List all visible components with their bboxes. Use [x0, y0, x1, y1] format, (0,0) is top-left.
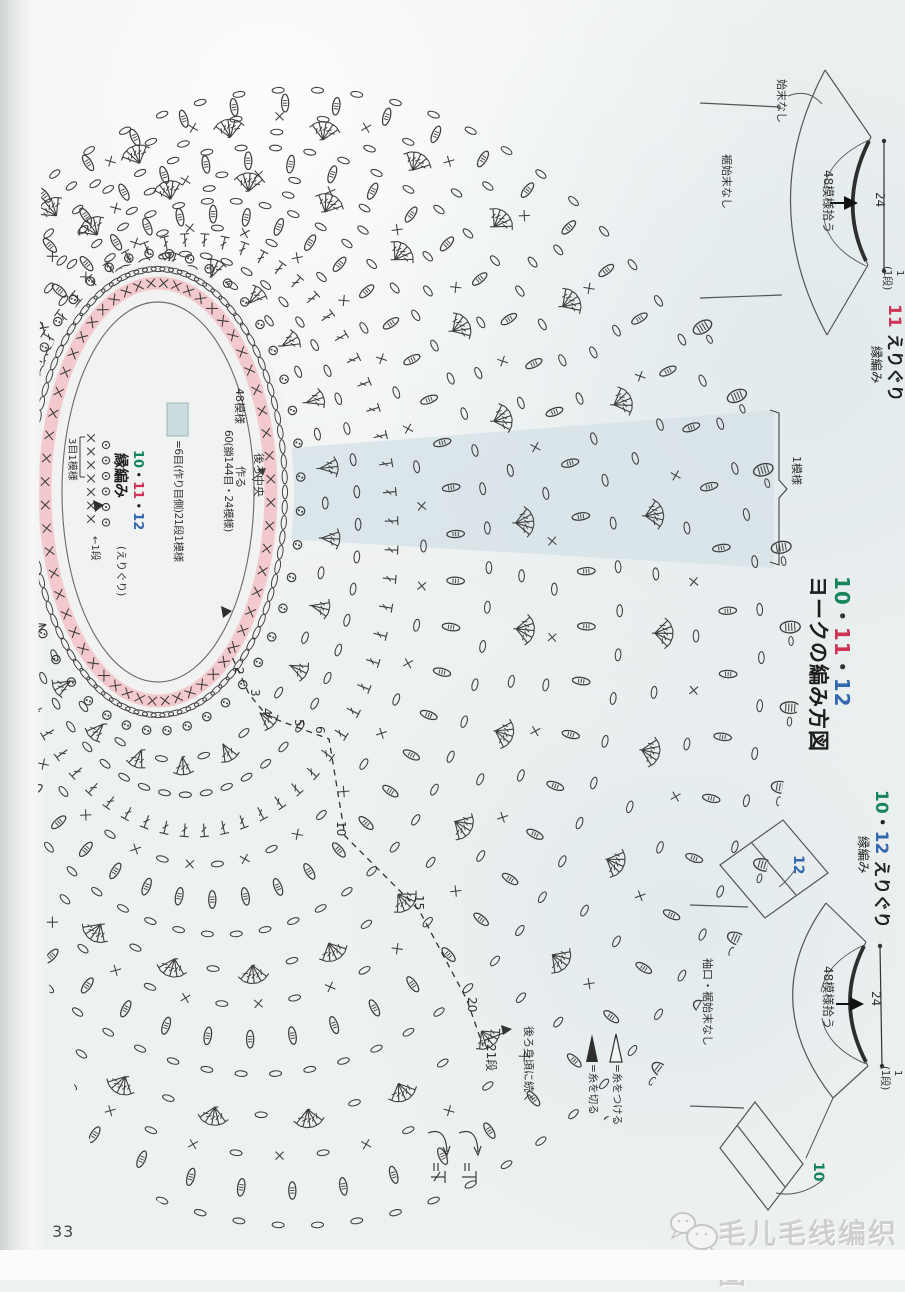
legend-attach-yarn: =糸をつける: [611, 1064, 623, 1125]
bottom-margin: [0, 1250, 905, 1280]
schematic-top-title: 11 えりぐり 縁編み: [869, 304, 903, 402]
continue-note: 後ろ身頃に続く: [521, 1026, 534, 1103]
crochet-chart-svg: [0, 0, 905, 1280]
sleeve-label-12: 12: [790, 855, 806, 874]
cuff-hem-label: 袖口・裾始末なし: [700, 958, 713, 1046]
bottom-label-10: 10: [810, 1162, 826, 1181]
schematic-top-side-line2: [700, 295, 782, 298]
schematic-mid-edge2: [833, 1066, 868, 1098]
no-finish-label: 始末なし: [774, 79, 787, 123]
row-number-15: 15: [411, 895, 425, 910]
pickup-label-mid: 48模様拾う: [820, 966, 834, 1029]
yoke-chart: [0, 87, 801, 1267]
page-title-numbers: 10・11・12: [830, 576, 853, 752]
schematic-mid-connector: [806, 1098, 833, 1158]
symbol-equivalence-2: [459, 1132, 481, 1183]
neck-cast-on: 60(鎖144目・24模様): [222, 430, 234, 532]
pattern-repeat-highlight: [266, 410, 774, 568]
one-row-label-mid: 1 (1段): [879, 1066, 903, 1090]
edging-label: 縁編み: [112, 453, 129, 498]
label10-leader: [776, 1180, 823, 1194]
schematic-top-leader: [788, 93, 822, 104]
dim-24-label-mid: 24: [868, 991, 882, 1006]
edging-numbers: 10・11・12: [129, 450, 144, 530]
row-number-6: 6: [312, 726, 326, 734]
hem-no-finish-label: 裾始末なし: [719, 154, 732, 209]
scanned-page: 10・11・12 ヨークの編み方図 11 えりぐり 縁編み 24 1 (1段) …: [0, 0, 905, 1280]
edging-row1: ←1段: [89, 536, 101, 561]
highlight-swatch: [167, 403, 188, 436]
edging-unit: 3目1模様: [66, 438, 78, 481]
schematic-top-subtitle: 縁編み: [869, 304, 883, 402]
legend-cut-yarn: =糸を切る: [587, 1064, 599, 1115]
row-number-10: 10: [333, 821, 347, 836]
row-21-label: 21段: [483, 1044, 497, 1071]
schematic-mid: [690, 820, 884, 1210]
one-row-label: 1 (1段): [881, 266, 905, 290]
schematic-top-edge2: [827, 265, 868, 335]
dim-24-label: 24: [872, 192, 886, 207]
page-number: 33: [52, 1222, 74, 1241]
row-number-20: 20: [464, 997, 478, 1012]
row-number-3: 3: [247, 689, 261, 697]
schematic-mid-subtitle: 縁編み: [856, 790, 870, 928]
swatch-note: =6目(作り目側)21段1模様: [172, 440, 184, 562]
schematic-mid-side-line2: [690, 1106, 744, 1108]
schematic-top-edge1: [825, 70, 871, 137]
neck-48-patterns: 48模様: [232, 388, 245, 424]
schematic-mid-title: 10・12 えりぐり 縁編み: [856, 790, 890, 928]
attach-yarn-triangle-icon: [610, 1034, 622, 1062]
row-number-4: 4: [259, 708, 273, 716]
edging-scope: (えりぐり): [115, 546, 127, 596]
pickup-arrow-icon-mid: [850, 997, 864, 1011]
row-number-2: 2: [231, 667, 245, 675]
schematic-mid-side-line1: [690, 905, 748, 907]
page-title: 10・11・12 ヨークの編み方図: [806, 576, 853, 752]
row-number-5: 5: [291, 719, 305, 727]
schematic-top-edging-band: [853, 141, 869, 261]
schematic-top-side-line1: [700, 103, 780, 107]
neck-back-center: 後ろ中央: [251, 453, 264, 497]
page-title-text: ヨークの編み方図: [806, 576, 830, 752]
cut-yarn-triangle-icon: [586, 1034, 598, 1062]
sleeve-bottom-midline: [737, 1125, 785, 1187]
wechat-icon: [671, 1213, 717, 1254]
one-pattern-label: 1模様: [789, 456, 802, 485]
pickup-label: 48模様拾う: [820, 170, 834, 233]
neck-make: 作る: [233, 466, 246, 488]
